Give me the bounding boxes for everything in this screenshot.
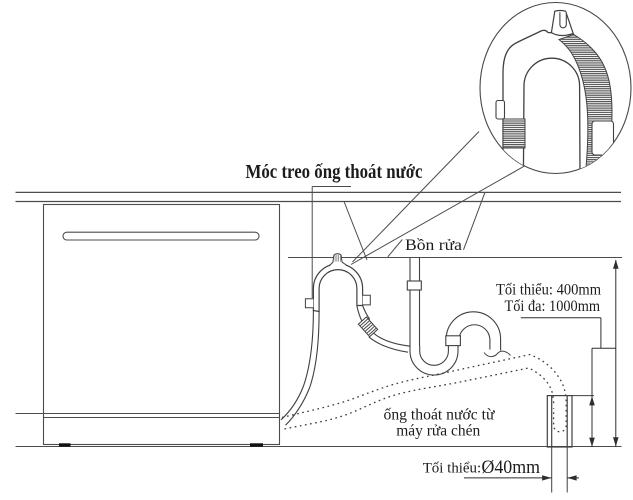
svg-text:Móc treo ống thoát nước: Móc treo ống thoát nước [246,161,423,183]
svg-text:ống thoát nước từ: ống thoát nước từ [384,407,496,424]
svg-text:Tối thiểu:: Tối thiểu: [423,460,482,476]
svg-text:Tối thiểu: 400mm: Tối thiểu: 400mm [496,282,601,299]
svg-text:Ø40mm: Ø40mm [482,457,541,478]
svg-text:Tối đa: 1000mm: Tối đa: 1000mm [505,298,601,315]
svg-text:máy rửa chén: máy rửa chén [396,423,480,440]
svg-text:Bồn rửa: Bồn rửa [405,237,462,254]
